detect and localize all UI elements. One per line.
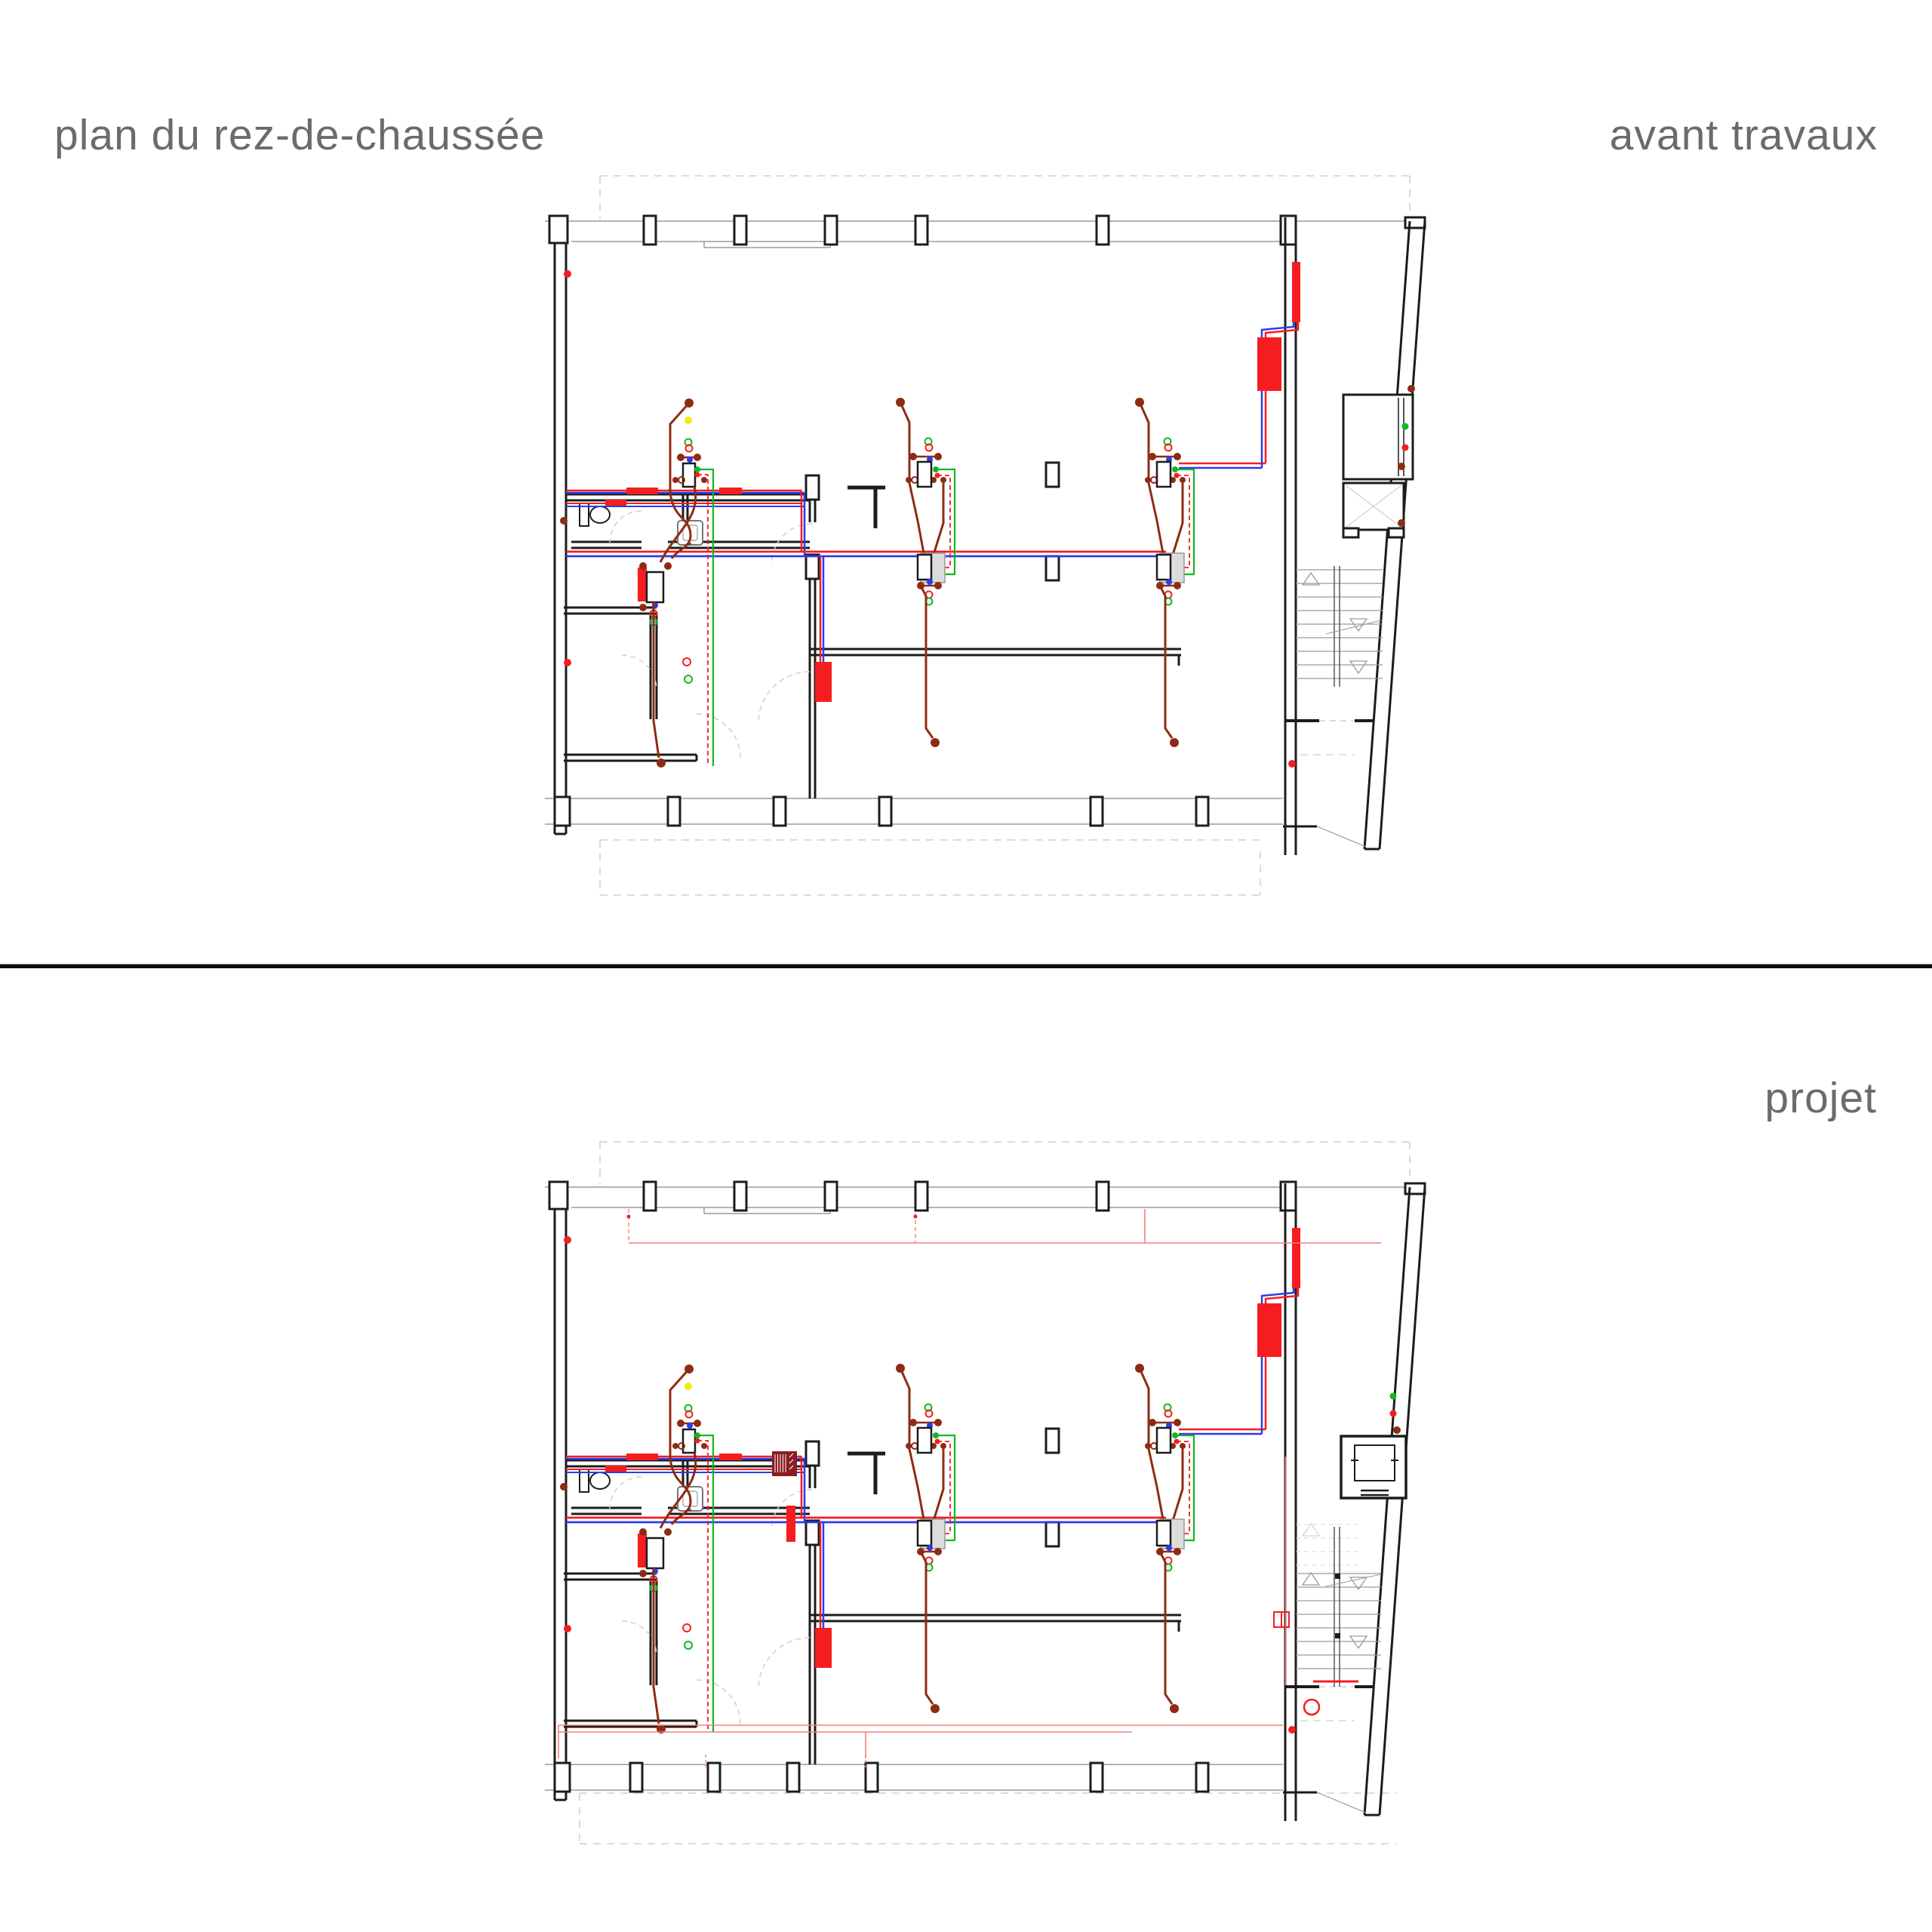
- page: plan du rez-de-chaussée avant travaux pr…: [0, 0, 1932, 1932]
- plan-projet: [545, 1142, 1425, 1844]
- plan-avant-travaux: [545, 176, 1425, 895]
- floor-plans-canvas: [0, 0, 1932, 1932]
